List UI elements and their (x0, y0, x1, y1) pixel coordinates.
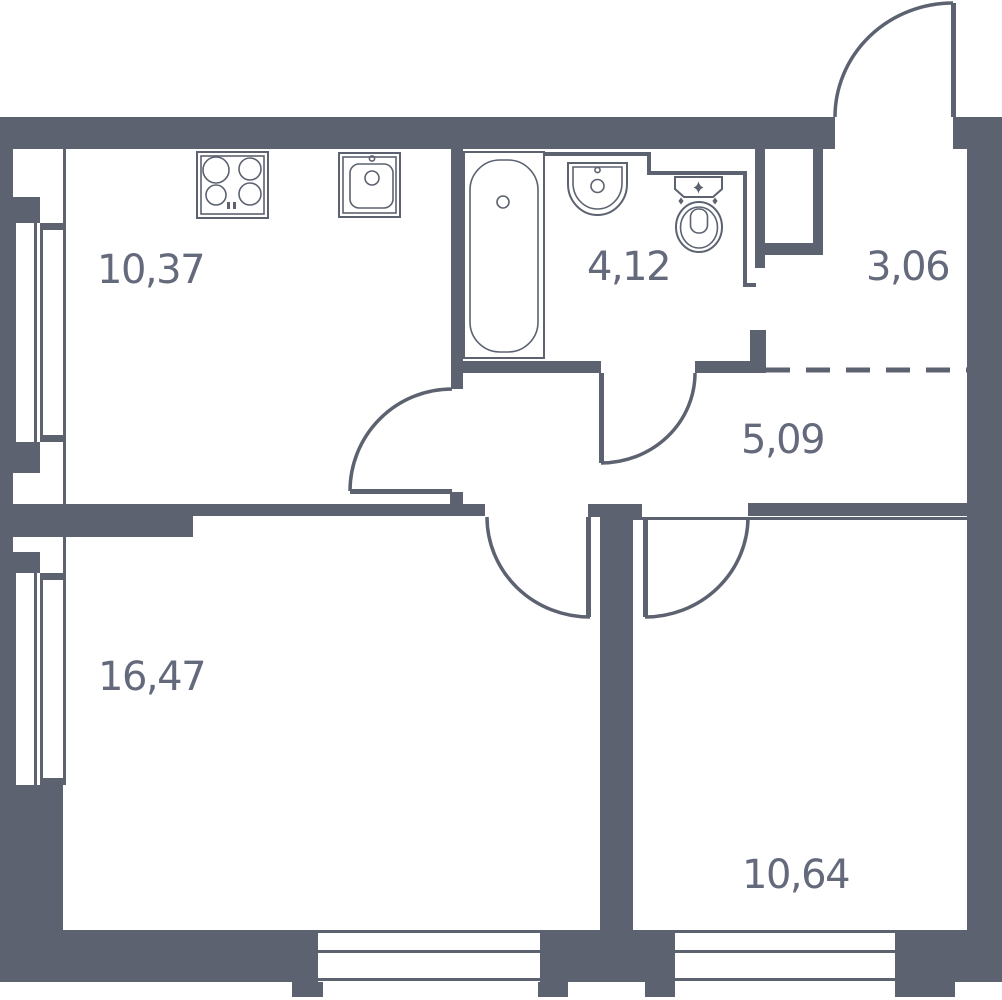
wall-right (967, 149, 1002, 982)
bedroom-window-south (675, 930, 895, 981)
window-glazing-line (318, 950, 540, 953)
wall-left-pier (0, 442, 40, 473)
window-glazing-line (675, 978, 895, 981)
wall-bottom-middle (540, 930, 675, 982)
door-leaf (599, 373, 604, 463)
window-glazing-line (675, 950, 895, 953)
inner-face-line (63, 149, 66, 504)
toilet-bolt (678, 198, 683, 205)
window-glazing-line (34, 223, 37, 442)
toilet (675, 177, 722, 252)
floor-plan: 10,37 4,12 3,06 5,09 16,47 10,64 (0, 0, 1002, 1000)
door-swing-arc (601, 373, 695, 463)
door-leaf (643, 517, 648, 617)
bathtub (464, 152, 544, 358)
room-label-bathroom: 4,12 (587, 244, 670, 290)
window-glazing-line (13, 573, 16, 785)
bathroom-duct-side (743, 171, 747, 287)
wall-door-cap (588, 504, 642, 517)
entry-door (835, 3, 956, 117)
wall-duct-bottom (765, 243, 823, 255)
wall-foot (538, 982, 568, 997)
door-leaf (586, 517, 591, 617)
wall-bottom-right (895, 930, 1002, 982)
wall-room-divider (600, 517, 633, 930)
wall-foot (895, 982, 955, 997)
wall-foot (292, 982, 323, 997)
door-leaf (350, 489, 452, 494)
wall-duct-right (813, 149, 823, 255)
living-room-window-south (318, 930, 540, 981)
washbasin (568, 163, 627, 215)
kitchen-sink (339, 153, 400, 217)
room-label-bedroom: 10,64 (742, 852, 849, 898)
cooktop-knob (227, 202, 230, 209)
room-label-living-room: 16,47 (98, 654, 205, 700)
window-glazing-line (13, 223, 16, 442)
cooktop-knob (233, 202, 236, 209)
wall-hinge-stub (450, 492, 463, 506)
window-niche-cap (40, 223, 66, 230)
wall-hall-piece (750, 330, 766, 373)
washbasin-outline (568, 163, 627, 215)
wall-foot (645, 982, 675, 997)
inner-face-line (633, 517, 967, 520)
window-niche-cap (40, 573, 66, 580)
room-label-hallway: 5,09 (741, 417, 824, 463)
wall-left-block (0, 504, 193, 537)
wall-top (0, 117, 835, 149)
bathtub-rim (464, 152, 544, 358)
cooktop (197, 152, 268, 218)
window-glazing-line (675, 930, 895, 933)
bathroom-duct-connector (747, 283, 756, 287)
room-label-entry-hall: 3,06 (866, 244, 949, 290)
bathroom-door (599, 373, 695, 463)
window-glazing-line (318, 978, 540, 981)
wall-duct-left (755, 149, 765, 268)
window-niche-cap (40, 435, 66, 442)
wall-top-right-stub (953, 117, 1002, 149)
kitchen-door (350, 389, 452, 494)
wall-bathroom-south-left (451, 361, 601, 373)
bedroom-door (643, 517, 748, 617)
room-label-kitchen: 10,37 (97, 247, 204, 293)
living-room-door (487, 517, 591, 617)
window-glazing-line (318, 930, 540, 933)
wall-kitchen-bathroom (451, 149, 463, 389)
wall-kitchen-living (193, 504, 485, 516)
wall-hallway-south (748, 503, 967, 516)
door-swing-arc (645, 517, 748, 617)
door-swing-arc (487, 517, 590, 617)
window-niche-edge (40, 223, 43, 442)
bathroom-duct-soffit (647, 171, 747, 175)
kitchen-window-west (13, 223, 66, 442)
wall-bottom-left (0, 930, 318, 982)
door-leaf (951, 3, 956, 117)
wall-left-pier (0, 197, 40, 223)
window-niche-edge (40, 573, 43, 785)
living-room-window-west (13, 573, 66, 785)
door-swing-arc (350, 389, 452, 491)
toilet-bolt (712, 198, 717, 205)
door-swing-arc (835, 3, 953, 117)
window-niche-cap (40, 778, 66, 785)
window-glazing-line (34, 573, 37, 785)
wall-left-pier (0, 552, 40, 573)
